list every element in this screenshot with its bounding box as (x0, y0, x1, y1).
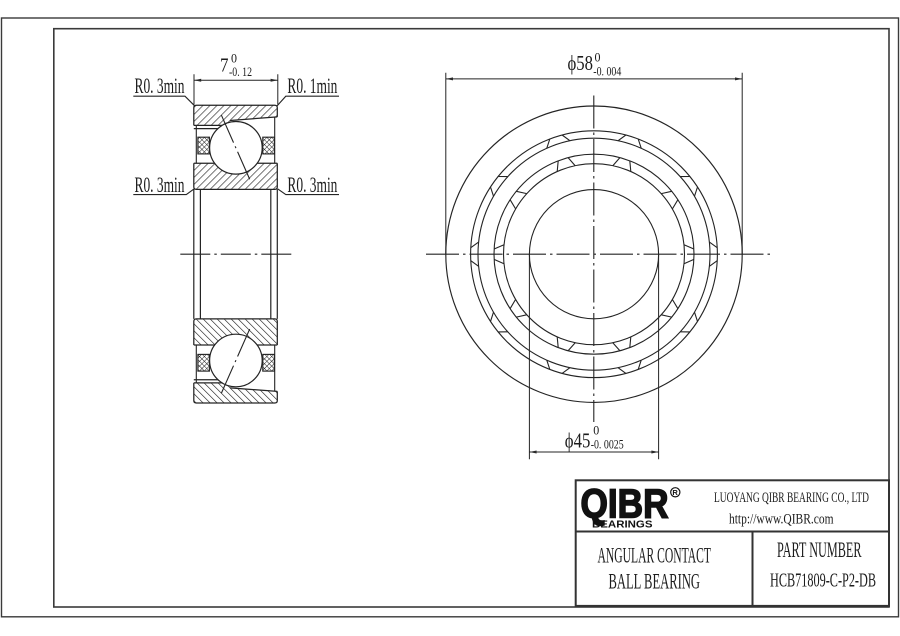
svg-text:ϕ45: ϕ45 (565, 428, 591, 452)
svg-text:PART NUMBER: PART NUMBER (777, 537, 862, 562)
svg-text:-0. 004: -0. 004 (593, 65, 622, 79)
svg-text:-0. 0025: -0. 0025 (591, 438, 624, 452)
svg-text:0: 0 (593, 424, 599, 438)
svg-text:R0. 1min: R0. 1min (287, 73, 337, 98)
svg-text:0: 0 (231, 52, 237, 66)
svg-text:http://www.QIBR.com: http://www.QIBR.com (729, 511, 834, 527)
svg-text:-0. 12: -0. 12 (229, 65, 252, 79)
svg-text:BEARINGS: BEARINGS (592, 520, 653, 531)
svg-text:BALL BEARING: BALL BEARING (609, 568, 701, 593)
svg-text:LUOYANG QIBR BEARING CO., LTD: LUOYANG QIBR BEARING CO., LTD (714, 490, 869, 506)
svg-text:R0. 3min: R0. 3min (135, 73, 185, 98)
svg-text:HCB71809-C-P2-DB: HCB71809-C-P2-DB (770, 570, 876, 592)
svg-text:R0. 3min: R0. 3min (135, 172, 185, 197)
svg-text:7: 7 (220, 55, 229, 77)
svg-text:0: 0 (595, 51, 601, 65)
svg-text:R0. 3min: R0. 3min (287, 172, 337, 197)
svg-text:R: R (672, 488, 678, 497)
svg-text:ϕ58: ϕ58 (568, 51, 594, 75)
svg-text:ANGULAR CONTACT: ANGULAR CONTACT (598, 543, 712, 568)
